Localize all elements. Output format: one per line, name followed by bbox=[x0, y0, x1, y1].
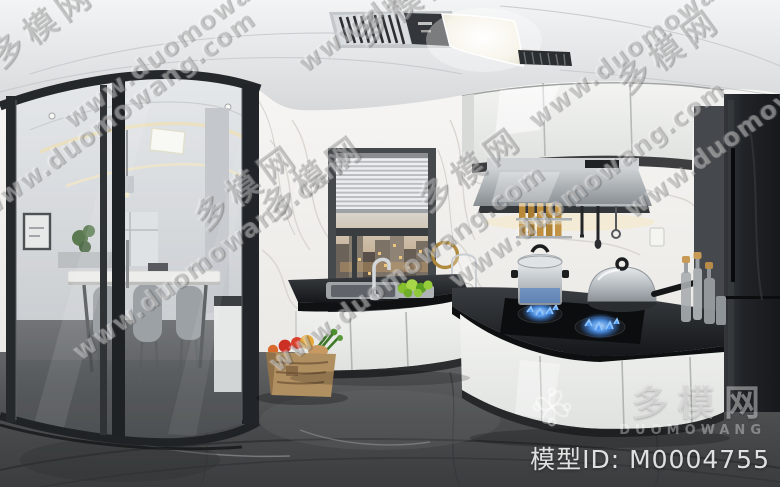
model-id-value: M0004755 bbox=[629, 445, 770, 474]
duomowang-watermark-badge: 多模网 DUOMOWANG 模型ID: M0004755 bbox=[530, 385, 770, 473]
model-id-text: 模型ID: M0004755 bbox=[530, 447, 770, 473]
watermark-text: 多模网 bbox=[0, 0, 103, 77]
watermark-text: 多模网 bbox=[406, 112, 531, 221]
watermark-text: www.duomowang.com bbox=[67, 147, 354, 366]
watermark-text: www.duomowang.com bbox=[443, 75, 730, 294]
watermark-text: www.duomowang.com bbox=[291, 0, 578, 78]
duomowang-flower-logo-icon bbox=[530, 385, 574, 429]
brand-name-chinese: 多模网 bbox=[632, 385, 770, 423]
watermark-text: 多模网 bbox=[182, 130, 307, 239]
watermark-text: www.duomowang.com bbox=[619, 5, 780, 224]
watermark-text: www.duomowang.com bbox=[521, 0, 780, 134]
kitchen-panorama-photo: www.duomowang.comwww.duomowang.com多模网多模网… bbox=[0, 0, 780, 487]
watermark-text: 多模网 bbox=[604, 0, 729, 103]
watermark-text: www.duomowang.com bbox=[57, 0, 344, 134]
watermark-text: 多模网 bbox=[248, 120, 373, 229]
watermark-text: 多模网 bbox=[342, 0, 467, 55]
model-id-label: 模型ID: bbox=[530, 445, 620, 474]
watermark-text: www.duomowang.com bbox=[0, 5, 260, 224]
watermark-text: www.duomowang.com bbox=[263, 159, 550, 378]
